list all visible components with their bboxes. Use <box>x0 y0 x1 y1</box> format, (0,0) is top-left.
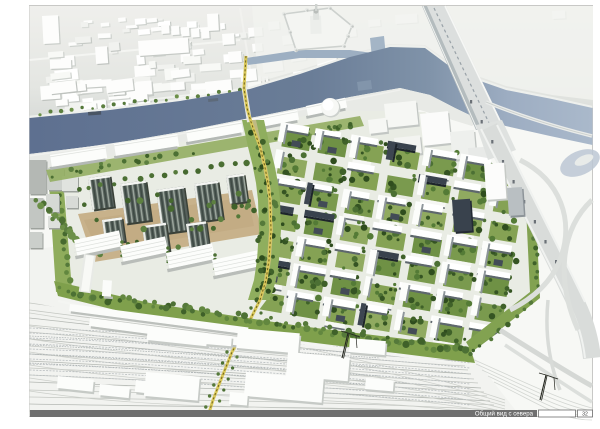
svg-text:Общий вид с севера: Общий вид с севера <box>475 411 534 418</box>
svg-text:32: 32 <box>582 412 588 418</box>
